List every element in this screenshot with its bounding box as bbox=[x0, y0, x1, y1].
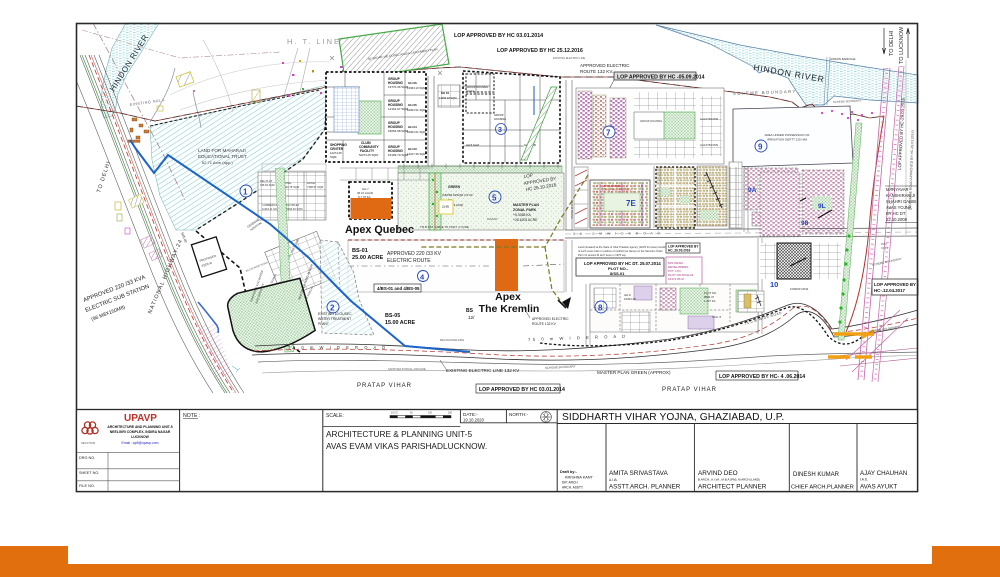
svg-text:REL PLOT: REL PLOT bbox=[260, 179, 273, 183]
svg-text:DIP. ARCH: DIP. ARCH bbox=[562, 481, 578, 485]
svg-text:LOP APPROVED BY HC 03.01.2014: LOP APPROVED BY HC 03.01.2014 bbox=[479, 387, 565, 393]
svg-text:9A: 9A bbox=[748, 187, 757, 194]
svg-text:KRISHNA KANT: KRISHNA KANT bbox=[565, 476, 594, 480]
svg-text:GH 04: GH 04 bbox=[408, 125, 417, 129]
svg-text:LAND FOR MAHARAJI: LAND FOR MAHARAJI bbox=[198, 148, 246, 153]
svg-text:GH 8 GH-8: GH 8 GH-8 bbox=[466, 143, 480, 147]
svg-text:KANSHIRAM JI: KANSHIRAM JI bbox=[886, 193, 915, 198]
svg-text:I.A.S.: I.A.S. bbox=[860, 478, 868, 482]
svg-text:1: 1 bbox=[243, 188, 248, 197]
svg-text:GROUP: GROUP bbox=[494, 113, 504, 117]
svg-text:SQM.: SQM. bbox=[330, 155, 337, 159]
svg-text:SCH. 8: SCH. 8 bbox=[712, 315, 721, 319]
svg-text:(180/84 M/SQM (72.00: (180/84 M/SQM (72.00 bbox=[442, 193, 473, 197]
svg-text:Plot 1 N ancient M de P anne m: Plot 1 N ancient M de P anne m 1975 say bbox=[578, 253, 627, 257]
svg-text:Draft by:-: Draft by:- bbox=[560, 470, 578, 474]
svg-text:9: 9 bbox=[758, 143, 763, 152]
svg-text:BS-01: BS-01 bbox=[352, 248, 368, 254]
svg-text:13393.18 SQM.: 13393.18 SQM. bbox=[439, 96, 457, 100]
svg-text:FILE NO.: FILE NO. bbox=[79, 484, 95, 488]
svg-text:GH 03: GH 03 bbox=[408, 147, 417, 151]
svg-text:ZONAL PARK APPROVED: ZONAL PARK APPROVED bbox=[602, 189, 631, 192]
svg-text:EXISTING ELECTRIC LINE 132 KV: EXISTING ELECTRIC LINE 132 KV bbox=[446, 368, 520, 373]
svg-text:A.I.IA.: A.I.IA. bbox=[609, 478, 618, 482]
svg-text:HINDON BARRAGE: HINDON BARRAGE bbox=[830, 57, 856, 61]
svg-text:25.00 ACRE: 25.00 ACRE bbox=[352, 255, 383, 261]
svg-text:HOUSING: HOUSING bbox=[494, 117, 506, 121]
svg-text:H. T. LINE: H. T. LINE bbox=[287, 37, 341, 46]
svg-text:ARVIND DEO: ARVIND DEO bbox=[698, 470, 738, 477]
svg-text:AVAS YOJNA: AVAS YOJNA bbox=[886, 205, 912, 210]
svg-text:+26.6203 ACRE: +26.6203 ACRE bbox=[513, 218, 538, 222]
svg-text:LOP APPROVED BY: LOP APPROVED BY bbox=[874, 282, 916, 287]
svg-text:UPAVP: UPAVP bbox=[124, 413, 157, 424]
svg-text:NOTE :: NOTE : bbox=[183, 413, 200, 419]
svg-text:9L: 9L bbox=[818, 203, 826, 210]
svg-text:KOMDSY2034: KOMDSY2034 bbox=[790, 287, 809, 291]
svg-text:DINESH KUMAR: DINESH KUMAR bbox=[793, 472, 840, 478]
svg-text:GREEN: GREEN bbox=[448, 185, 461, 189]
svg-text:MASTER PLAN: MASTER PLAN bbox=[513, 203, 539, 207]
svg-text:GH-04: GH-04 bbox=[466, 89, 474, 93]
svg-text:16063.98 SQM.: 16063.98 SQM. bbox=[388, 129, 409, 133]
svg-text:7E: 7E bbox=[626, 199, 636, 208]
svg-text:ARCHITECTURE & PLANNING UNIT-5: ARCHITECTURE & PLANNING UNIT-5 bbox=[326, 429, 473, 439]
svg-text:IRRIGATION DEPTT 125 H/M: IRRIGATION DEPTT 125 H/M bbox=[767, 138, 808, 142]
svg-text:BS: BS bbox=[466, 308, 474, 314]
svg-text:LOP APPROVED BY HC 25.12.2016: LOP APPROVED BY HC 25.12.2016 bbox=[497, 48, 583, 54]
svg-text:62.71 Acre (app.): 62.71 Acre (app.) bbox=[202, 160, 233, 165]
svg-text:PRATAP VIHAR: PRATAP VIHAR bbox=[357, 383, 412, 389]
svg-text:12161.97 SQM.: 12161.97 SQM. bbox=[388, 107, 409, 111]
svg-text:of such court order or petitio: of such court order or petition of notif… bbox=[578, 249, 663, 253]
svg-text:+5.3068 KA: +5.3068 KA bbox=[513, 213, 532, 217]
svg-text:DH 04: DH 04 bbox=[441, 91, 449, 95]
svg-text:15303.46 SQM: 15303.46 SQM bbox=[285, 207, 302, 211]
svg-text:8: 8 bbox=[598, 304, 603, 313]
svg-text:HC-.12.04.2017: HC-.12.04.2017 bbox=[874, 288, 906, 293]
svg-text:NORTH:-: NORTH:- bbox=[509, 412, 529, 417]
svg-text:WATER TREATMENT: WATER TREATMENT bbox=[318, 317, 351, 321]
svg-text:CHR: CHR bbox=[442, 205, 450, 209]
svg-text:GROUP HOUSING: GROUP HOUSING bbox=[640, 119, 662, 123]
svg-text:10: 10 bbox=[770, 280, 778, 289]
svg-text:LUCKNOW: LUCKNOW bbox=[131, 435, 150, 439]
svg-text:15.00 ACRE: 15.00 ACRE bbox=[385, 320, 415, 326]
svg-text:HOTEL: HOTEL bbox=[307, 181, 316, 185]
svg-text:13770.36 SQM.: 13770.36 SQM. bbox=[388, 85, 409, 89]
svg-text:MASTER PLAN GREEN (APPROX): MASTER PLAN GREEN (APPROX) bbox=[597, 370, 671, 375]
svg-text:ARCH. ASSTT.: ARCH. ASSTT. bbox=[562, 486, 584, 490]
svg-text:1.207 KA: 1.207 KA bbox=[704, 299, 716, 303]
svg-text:SHEET NO.: SHEET NO. bbox=[79, 471, 99, 475]
svg-text:SANITORA INTRCAL CIRCLINE: SANITORA INTRCAL CIRCLINE bbox=[388, 367, 426, 371]
svg-text:HC..26.09.2016: HC..26.09.2016 bbox=[668, 249, 691, 253]
svg-text:C03.1: C03.1 bbox=[881, 246, 889, 250]
svg-text:200: 200 bbox=[448, 412, 453, 415]
svg-text:10 0 5: 10 0 5 bbox=[391, 412, 398, 415]
svg-text:LOP APPROVED BY HC- 4 .06.2014: LOP APPROVED BY HC- 4 .06.2014 bbox=[719, 374, 805, 380]
svg-text:GROUP HOUSING: GROUP HOUSING bbox=[466, 85, 488, 89]
svg-text:BY HC DT: BY HC DT bbox=[886, 211, 906, 216]
svg-text:EDUCATIONAL TRUST: EDUCATIONAL TRUST bbox=[198, 154, 247, 159]
svg-text:98: 98 bbox=[801, 220, 809, 227]
svg-text:ROUTE 132 KV.: ROUTE 132 KV. bbox=[580, 69, 613, 74]
svg-text:AMITA SRIVASTAVA: AMITA SRIVASTAVA bbox=[609, 470, 668, 477]
svg-text:Email : ap5@upavp.com: Email : ap5@upavp.com bbox=[122, 441, 159, 445]
svg-text:PRATAP VIHAR: PRATAP VIHAR bbox=[662, 387, 717, 393]
svg-text:EXISTING ELECTRIC LINE: EXISTING ELECTRIC LINE bbox=[553, 56, 585, 60]
svg-text:7398.97 SQM: 7398.97 SQM bbox=[307, 185, 323, 189]
svg-text:16001.51 SQM.: 16001.51 SQM. bbox=[407, 108, 427, 112]
svg-text:SIDDHARTH VIHAR YOJNA, GHAZIAB: SIDDHARTH VIHAR YOJNA, GHAZIABAD, U.P. bbox=[562, 412, 784, 423]
svg-text:GH 06: GH 06 bbox=[408, 103, 417, 107]
svg-text:ARCHITECT PLANNER: ARCHITECT PLANNER bbox=[698, 484, 767, 491]
svg-text:ELECTRIC ROUTE: ELECTRIC ROUTE bbox=[387, 258, 431, 264]
svg-text:LOP APPROVED BY HC -05.09.2014: LOP APPROVED BY HC -05.09.2014 bbox=[617, 75, 705, 81]
svg-text:BS-05: BS-05 bbox=[385, 313, 400, 319]
svg-text:52274.25 SQM.: 52274.25 SQM. bbox=[359, 153, 379, 157]
svg-text:ARCHITECTURE AND PLANNING UNIT: ARCHITECTURE AND PLANNING UNIT-5 bbox=[107, 425, 172, 429]
svg-text:PLANT: PLANT bbox=[318, 322, 329, 326]
svg-text:100: 100 bbox=[428, 412, 433, 415]
svg-text:DRG NO.: DRG NO. bbox=[79, 456, 95, 460]
svg-text:MEA RHONRA DIKE: MEA RHONRA DIKE bbox=[440, 338, 464, 342]
svg-text:7: 7 bbox=[606, 129, 611, 138]
svg-text:4/BS-01 and 4/BS-05: 4/BS-01 and 4/BS-05 bbox=[377, 286, 420, 291]
svg-text:12/: 12/ bbox=[468, 315, 475, 320]
svg-text:MAZAR: MAZAR bbox=[487, 217, 498, 221]
svg-text:APPROVED ELECTRIC: APPROVED ELECTRIC bbox=[580, 63, 630, 68]
svg-text:CHIEF ARCH.PLANNER: CHIEF ARCH.PLANNER bbox=[791, 485, 854, 491]
svg-text:ASSTT.ARCH. PLANNER: ASSTT.ARCH. PLANNER bbox=[609, 484, 681, 491]
svg-text:ZONAL PARK: ZONAL PARK bbox=[513, 208, 537, 212]
svg-text:GH 06: GH 06 bbox=[408, 81, 417, 85]
svg-text:MANYAVAR: MANYAVAR bbox=[886, 187, 909, 192]
svg-text:8/SS-01: 8/SS-01 bbox=[610, 271, 625, 276]
svg-text:LOP APPROVED BY HC 03.01.2014: LOP APPROVED BY HC 03.01.2014 bbox=[454, 33, 543, 39]
svg-text:AVAS EVAM VIKAS PARISHADLUCKNO: AVAS EVAM VIKAS PARISHADLUCKNOW. bbox=[326, 441, 487, 451]
svg-text:16109.79 SQM.: 16109.79 SQM. bbox=[388, 153, 409, 157]
svg-text:ROUTE 132 KV: ROUTE 132 KV bbox=[532, 322, 557, 326]
svg-text:EXISTING 10 OUSEC: EXISTING 10 OUSEC bbox=[318, 312, 352, 316]
svg-text:NEELGIRI COMPLEX, INDIRA NAGAR: NEELGIRI COMPLEX, INDIRA NAGAR bbox=[110, 430, 171, 434]
svg-text:SEVOTTAM: SEVOTTAM bbox=[81, 441, 95, 445]
svg-text:DATE:-: DATE:- bbox=[463, 412, 478, 417]
svg-text:16303.48: 16303.48 bbox=[624, 297, 636, 301]
svg-text:The Kremlin: The Kremlin bbox=[479, 303, 540, 315]
svg-text:16471.86 M: 16471.86 M bbox=[668, 277, 684, 281]
svg-text:APPROVED ELECTRIC: APPROVED ELECTRIC bbox=[532, 317, 569, 321]
svg-text:16001.51 SQM.: 16001.51 SQM. bbox=[407, 130, 427, 134]
svg-text:GH/LP BOOMS: GH/LP BOOMS bbox=[700, 117, 718, 121]
svg-text:B.ARCH., A.I.VA., M.B.A.(PM),: B.ARCH., A.I.VA., M.B.A.(PM), M.ARCH.(LA… bbox=[698, 478, 760, 482]
svg-text:AVAS AYUKT: AVAS AYUKT bbox=[860, 484, 897, 491]
svg-text:Apex: Apex bbox=[495, 291, 521, 303]
svg-text:LATHA TARMILA: LATHA TARMILA bbox=[602, 184, 623, 188]
svg-text:T.B.B.T.&T. CABLE TO KOMT. 3 C: T.B.B.T.&T. CABLE TO KOMT. 3 CORE bbox=[420, 225, 469, 229]
svg-text:19.10.2020: 19.10.2020 bbox=[463, 418, 485, 423]
svg-text:13363.10 SQM.: 13363.10 SQM. bbox=[407, 86, 427, 90]
svg-text:22.10.2008: 22.10.2008 bbox=[886, 217, 908, 222]
svg-text:AREA UNDER POSSESSION OF: AREA UNDER POSSESSION OF bbox=[764, 133, 809, 137]
svg-text:GH/LP BOOMS: GH/LP BOOMS bbox=[700, 143, 718, 147]
svg-text:14107.36 SQM.: 14107.36 SQM. bbox=[407, 152, 427, 156]
svg-text:936.69 SQM: 936.69 SQM bbox=[260, 183, 275, 187]
svg-text:75.0 m W I D E R O A D: 75.0 m W I D E R O A D bbox=[288, 345, 388, 350]
svg-text:APPROVED 220 /33 KV: APPROVED 220 /33 KV bbox=[387, 251, 442, 257]
svg-text:MULTIPLEX: MULTIPLEX bbox=[285, 203, 299, 207]
svg-text:TO DELHI: TO DELHI bbox=[889, 30, 895, 56]
svg-text:11316.11 SQM: 11316.11 SQM bbox=[262, 207, 279, 211]
svg-text:TO LUCKNOW: TO LUCKNOW bbox=[899, 26, 905, 64]
svg-text:3 0 . 0 M W I D E R O A: 3 0 . 0 M W I D E R O A D bbox=[573, 231, 662, 236]
svg-text:Apex Quebec: Apex Quebec bbox=[345, 224, 414, 236]
svg-text:SHAHRI GARIB: SHAHRI GARIB bbox=[886, 199, 916, 204]
svg-text:AJAY CHAUHAN: AJAY CHAUHAN bbox=[860, 470, 907, 477]
svg-text:5: 5 bbox=[492, 194, 497, 203]
svg-text:SCALE:: SCALE: bbox=[326, 413, 344, 419]
svg-text:3: 3 bbox=[498, 127, 502, 134]
svg-text:Land (situated) at the State o: Land (situated) at the State of Uttar Pr… bbox=[578, 245, 674, 249]
